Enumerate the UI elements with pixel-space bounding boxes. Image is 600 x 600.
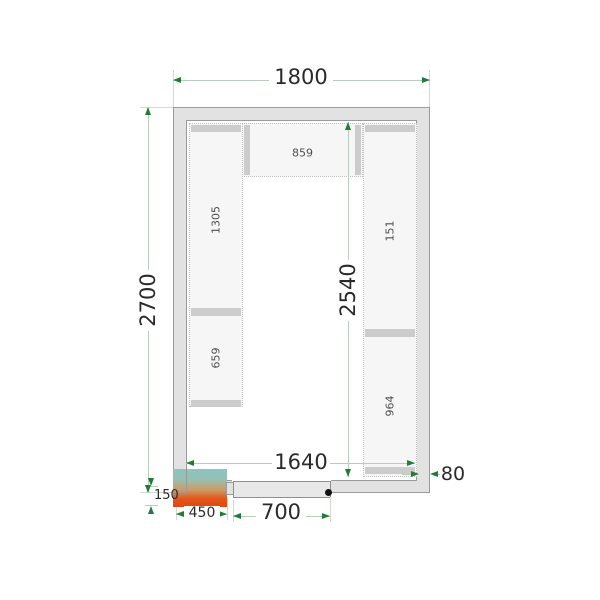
floor-plan-canvas: 1305 659 859 151 964 1800 2700 2540 bbox=[0, 0, 600, 600]
arrowhead-left bbox=[173, 77, 181, 83]
dim-label-wall-thickness: 80 bbox=[440, 464, 466, 485]
arrowhead-up bbox=[145, 107, 151, 115]
arrowhead-right bbox=[411, 471, 419, 477]
shelf-support-bar bbox=[244, 125, 250, 175]
cooling-unit bbox=[173, 469, 227, 507]
arrowhead-up bbox=[148, 506, 154, 514]
dim-label-outer-width: 1800 bbox=[269, 66, 333, 89]
extension-line bbox=[173, 70, 174, 107]
dim-label-inner-width: 1640 bbox=[272, 451, 330, 474]
arrowhead-left bbox=[186, 460, 194, 466]
arrowhead-left bbox=[176, 511, 184, 517]
arrowhead-right bbox=[422, 77, 430, 83]
dim-label-unit-protrusion: 150 bbox=[154, 489, 178, 503]
shelf-support-bar bbox=[191, 308, 241, 316]
extension-line bbox=[429, 70, 430, 107]
shelf-length-label-right-upper: 151 bbox=[384, 221, 397, 242]
arrowhead-down bbox=[345, 469, 351, 477]
arrowhead-down bbox=[145, 485, 151, 493]
shelf-support-bar bbox=[355, 125, 361, 175]
shelf-length-label-right-lower: 964 bbox=[384, 396, 397, 417]
dim-tail bbox=[402, 474, 411, 475]
shelf-support-bar bbox=[365, 329, 415, 337]
shelf-top-run: 859 bbox=[242, 123, 363, 177]
door-handle-dot bbox=[325, 489, 332, 496]
arrowhead-right bbox=[322, 513, 330, 519]
arrowhead-right bbox=[219, 511, 227, 517]
dim-label-unit-width: 450 bbox=[184, 506, 220, 521]
shelf-length-label-left-lower: 659 bbox=[210, 348, 223, 369]
arrowhead-right bbox=[407, 460, 415, 466]
arrowhead-left bbox=[233, 513, 241, 519]
shelf-support-bar bbox=[191, 400, 241, 407]
arrowhead-down bbox=[148, 478, 154, 486]
shelf-support-bar bbox=[365, 467, 415, 474]
arrowhead-up bbox=[345, 122, 351, 130]
shelf-left-column: 1305 659 bbox=[189, 123, 243, 407]
shelf-length-label-top: 859 bbox=[292, 147, 313, 160]
arrowhead-left bbox=[430, 471, 438, 477]
extension-line bbox=[330, 497, 331, 522]
door-leaf bbox=[233, 481, 331, 498]
extension-line bbox=[227, 498, 228, 520]
dim-label-door-width: 700 bbox=[256, 501, 306, 524]
wall-corner-line bbox=[186, 469, 187, 493]
shelf-right-column: 151 964 bbox=[363, 123, 417, 477]
shelf-length-label-left-upper: 1305 bbox=[210, 206, 223, 234]
shelf-support-bar bbox=[365, 125, 415, 132]
shelf-support-bar bbox=[191, 125, 241, 132]
